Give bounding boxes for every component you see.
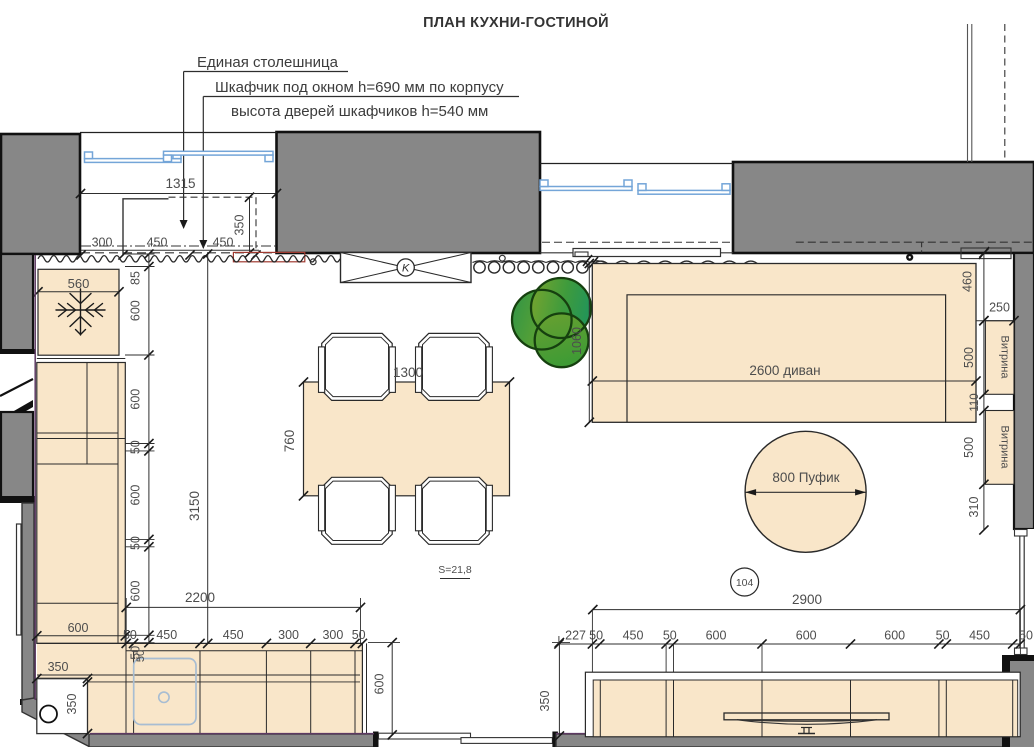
svg-text:350: 350 xyxy=(48,660,69,674)
svg-text:600: 600 xyxy=(68,621,89,635)
svg-text:50: 50 xyxy=(135,650,147,662)
svg-text:2200: 2200 xyxy=(185,590,215,605)
svg-text:104: 104 xyxy=(736,577,754,589)
svg-text:300: 300 xyxy=(92,236,113,250)
svg-text:Единая столешница: Единая столешница xyxy=(197,54,339,71)
svg-text:Витрина: Витрина xyxy=(999,336,1011,380)
svg-text:300: 300 xyxy=(322,628,343,642)
svg-text:450: 450 xyxy=(223,628,244,642)
svg-text:2900: 2900 xyxy=(792,592,822,607)
svg-text:600: 600 xyxy=(129,485,143,506)
svg-text:3150: 3150 xyxy=(187,491,202,521)
svg-text:50: 50 xyxy=(663,629,677,643)
svg-text:450: 450 xyxy=(156,628,177,642)
svg-text:350: 350 xyxy=(65,694,79,715)
svg-text:85: 85 xyxy=(129,271,143,285)
svg-text:500: 500 xyxy=(962,437,976,458)
svg-text:высота дверей шкафчиков h=540: высота дверей шкафчиков h=540 мм xyxy=(231,103,488,120)
svg-text:ПЛАН КУХНИ-ГОСТИНОЙ: ПЛАН КУХНИ-ГОСТИНОЙ xyxy=(423,13,609,31)
svg-text:600: 600 xyxy=(884,629,905,643)
svg-text:500: 500 xyxy=(962,347,976,368)
svg-text:450: 450 xyxy=(213,236,234,250)
svg-text:600: 600 xyxy=(372,674,386,695)
svg-text:50: 50 xyxy=(589,629,603,643)
svg-text:50: 50 xyxy=(129,440,143,454)
svg-text:S=21,8: S=21,8 xyxy=(438,564,472,576)
svg-text:800 Пуфик: 800 Пуфик xyxy=(772,470,839,485)
svg-text:600: 600 xyxy=(129,581,143,602)
svg-text:50: 50 xyxy=(352,628,366,642)
svg-text:450: 450 xyxy=(623,629,644,643)
svg-text:600: 600 xyxy=(706,629,727,643)
svg-text:Шкафчик под окном h=690 мм по: Шкафчик под окном h=690 мм по корпусу xyxy=(215,79,504,96)
svg-text:50: 50 xyxy=(129,536,143,550)
svg-text:50: 50 xyxy=(1019,629,1033,643)
svg-text:50: 50 xyxy=(936,629,950,643)
svg-text:350: 350 xyxy=(233,215,247,236)
svg-text:600: 600 xyxy=(129,389,143,410)
svg-text:1315: 1315 xyxy=(165,176,195,191)
svg-text:450: 450 xyxy=(147,236,168,250)
svg-text:227: 227 xyxy=(565,629,586,643)
svg-text:1060: 1060 xyxy=(570,327,584,355)
svg-text:300: 300 xyxy=(278,628,299,642)
svg-text:350: 350 xyxy=(538,691,552,712)
svg-text:K: K xyxy=(402,263,410,275)
svg-text:2600 диван: 2600 диван xyxy=(749,363,820,378)
svg-text:110: 110 xyxy=(969,393,981,411)
svg-text:310: 310 xyxy=(967,497,981,518)
svg-text:460: 460 xyxy=(961,271,975,292)
svg-text:600: 600 xyxy=(796,629,817,643)
svg-text:250: 250 xyxy=(989,301,1010,315)
svg-text:Витрина: Витрина xyxy=(999,426,1011,470)
svg-text:760: 760 xyxy=(282,430,297,453)
svg-text:1300: 1300 xyxy=(393,365,423,380)
svg-text:600: 600 xyxy=(129,300,143,321)
svg-text:450: 450 xyxy=(969,629,990,643)
svg-text:560: 560 xyxy=(68,276,90,291)
